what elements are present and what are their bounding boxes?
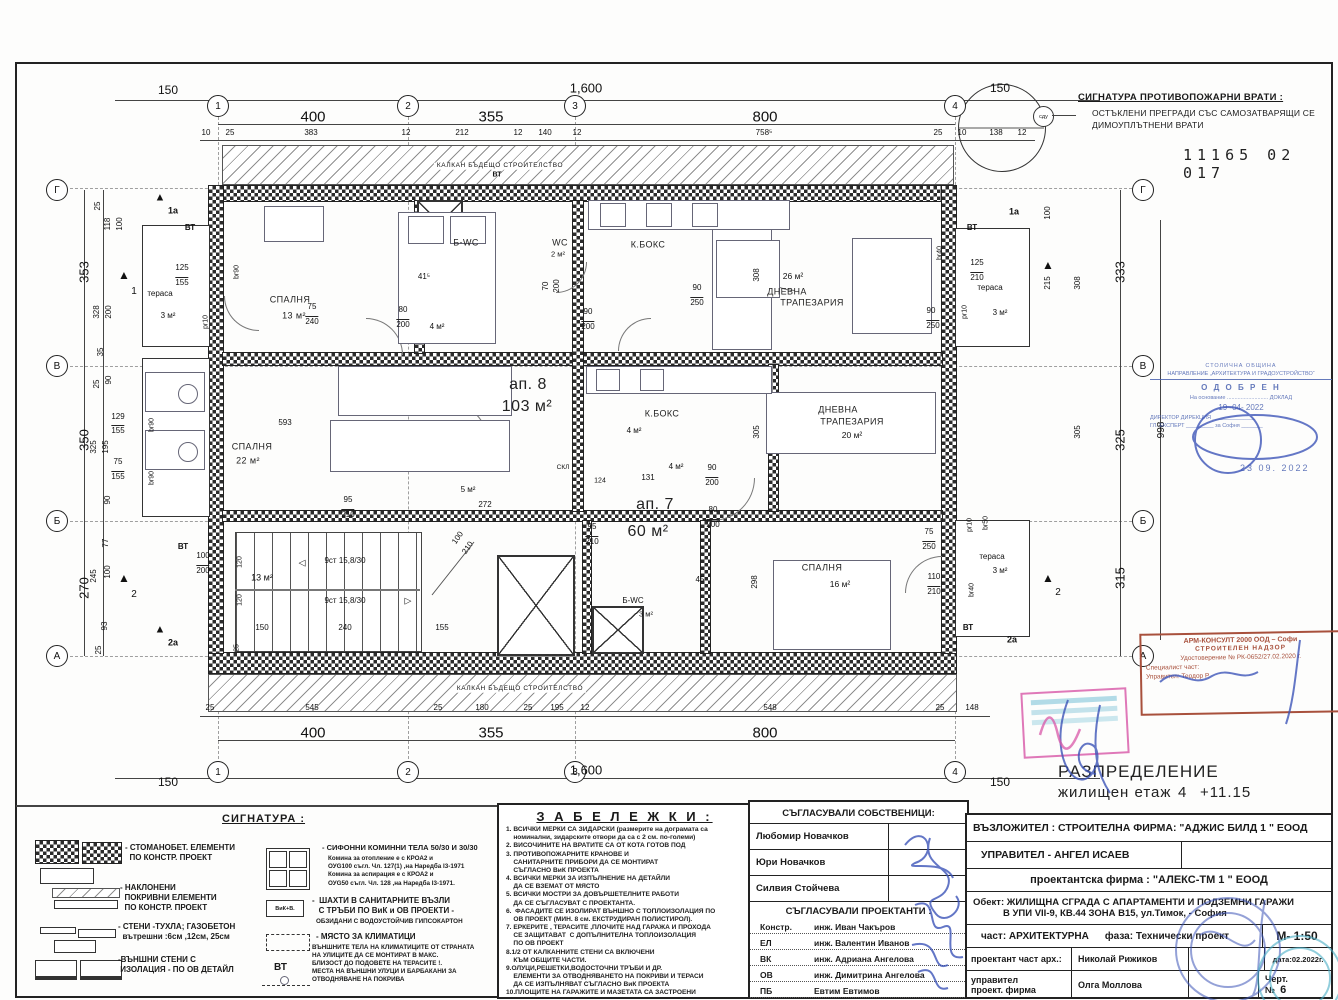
notes-block: З А Б Е Л Е Ж К И : 1. ВСИЧКИ МЕРКИ СА З… xyxy=(497,803,752,999)
dimension-label: br40 xyxy=(969,583,976,597)
dimension-label: 125 xyxy=(970,259,983,267)
grid-bubble: Г xyxy=(46,179,68,201)
dimension-label: 593 xyxy=(278,419,291,427)
owner-row: Силвия Стойчева xyxy=(750,875,967,901)
design-firm-text: проектантска фирма : "АЛЕКС-ТМ 1 " ЕООД xyxy=(1030,874,1268,886)
dimension-label: br90 xyxy=(149,418,156,432)
bt-symbol-arrow xyxy=(262,985,310,986)
room-label: СПАЛНЯ xyxy=(232,443,272,452)
kitchen-appliance xyxy=(640,369,664,391)
dimension-label: 10 xyxy=(202,129,211,137)
approval-date-stamp: 23 09. 2022 xyxy=(1240,463,1310,473)
plan-marker: ВТ xyxy=(963,624,973,632)
dimension-label: 325 xyxy=(90,440,98,453)
title-block: ВЪЗЛОЖИТЕЛ : СТРОИТЕЛНА ФИРМА: "АДЖИС БИ… xyxy=(965,813,1333,999)
legend-swatch-concrete xyxy=(35,840,79,864)
legend-swatch-roof xyxy=(52,888,120,898)
dimension-label: 305 xyxy=(753,425,761,438)
room-label: 103 м² xyxy=(502,399,552,415)
client-text: ВЪЗЛОЖИТЕЛ : СТРОИТЕЛНА ФИРМА: "АДЖИС БИ… xyxy=(973,822,1308,834)
dim-line-bottom-sub xyxy=(200,716,990,717)
dimension-label: 10 xyxy=(958,129,967,137)
grid-bubble: 2 xyxy=(397,761,419,783)
plan-marker: 2 xyxy=(131,590,137,600)
room-label: СПАЛНЯ xyxy=(802,564,842,573)
owner-row: Любомир Новачков xyxy=(750,823,967,849)
approval-stamp-title: О Д О Б Р Е Н xyxy=(1150,382,1332,394)
legend-swatch-wall1 xyxy=(40,927,76,934)
dimension-label: 138 xyxy=(989,129,1002,137)
designer-name: Евтим Евтимов xyxy=(812,982,967,997)
room-label: ТРАПЕЗАРИЯ xyxy=(820,418,883,427)
legend-item5-sub: Комина за отопление е с КРОА2 и ОУG100 с… xyxy=(328,855,464,888)
dimension-label: 100 xyxy=(196,552,209,560)
plan-marker: ▲ xyxy=(118,572,130,584)
legend-item5-text: - СИФОННИ КОМИННИ ТЕЛА 50/30 И 30/30 xyxy=(322,843,478,852)
legend-item4-text: -ВЪНШНИ СТЕНИ С ИЗОЛАЦИЯ - ПО ОВ ДЕТАЙЛ xyxy=(118,955,234,975)
dimension-label: 124 xyxy=(594,478,606,485)
dimension-label: 45 xyxy=(696,576,705,584)
legend-swatch-wall2 xyxy=(78,929,116,938)
dimension-label: pr10 xyxy=(967,518,974,532)
plan-marker: ▲ xyxy=(1042,259,1054,271)
note-line: КЪМ ОБЩИТЕ ЧАСТИ. xyxy=(506,957,745,965)
room-label: 3 м² xyxy=(993,309,1008,317)
designer-row: ЕЛ инж. Валентин Иванов xyxy=(750,934,967,950)
legend-swatch-ext2 xyxy=(80,960,122,980)
staircase-landing-line xyxy=(235,589,420,591)
legend-item3-text: - СТЕНИ -ТУХЛА; ГАЗОБЕТОН вътрешни :6см … xyxy=(118,922,235,942)
owner-name: Юри Новачков xyxy=(750,850,888,875)
dimension-label: 308 xyxy=(753,268,761,281)
dimension-label: 100 xyxy=(104,565,112,578)
room-label: 22 м² xyxy=(236,457,260,466)
dimension-label: 12 xyxy=(573,129,582,137)
dimension-label: 548 xyxy=(763,704,776,712)
manager-row: УПРАВИТЕЛ - АНГЕЛ ИСАЕВ xyxy=(967,842,1331,869)
dimension-label: 155 xyxy=(111,425,124,435)
legend-item6-text: - ШАХТИ В САНИТАРНИТЕ ВЪЗЛИ С ТРЪБИ ПО В… xyxy=(312,896,454,916)
dimension-label: 212 xyxy=(455,129,468,137)
owner-signature-cell xyxy=(888,850,967,875)
approvals-block: СЪГЛАСУВАЛИ СОБСТВЕНИЦИ: Любомир Новачко… xyxy=(748,800,969,999)
plan-marker: 2a xyxy=(1007,636,1017,645)
dimension-label: 240 xyxy=(338,624,351,632)
plan-marker: ▲ xyxy=(118,269,130,281)
legend-swatch-roof2 xyxy=(54,900,118,909)
dimension-label: 200 xyxy=(581,321,594,331)
dimension-label: 305 xyxy=(1074,425,1082,438)
dimension-label: 118 xyxy=(104,218,112,231)
dimension-label: 800 xyxy=(752,726,777,741)
dimension-label: 383 xyxy=(304,129,317,137)
dimension-label: 70 xyxy=(542,282,550,291)
dimension-label: 215 xyxy=(1044,276,1052,289)
legend-item7-sub: ВЪНШНИТЕ ТЕЛА НА КЛИМАТИЦИТЕ ОТ СТРАНАТА… xyxy=(312,944,474,969)
dimension-label: 315 xyxy=(1114,567,1127,589)
dimension-label: 240 xyxy=(305,316,318,326)
fire-note-line2: ДИМОУПЛЪТНЕНИ ВРАТИ xyxy=(1092,120,1204,130)
grid-bubble: 3 xyxy=(564,95,586,117)
designer-row: ОВ инж. Димитрина Ангелова xyxy=(750,966,967,982)
dimension-label: 25 xyxy=(934,129,943,137)
note-line: ПО ОВ ПРОЕКТ xyxy=(506,940,745,948)
client-row: ВЪЗЛОЖИТЕЛ : СТРОИТЕЛНА ФИРМА: "АДЖИС БИ… xyxy=(967,815,1331,842)
party-wall-band-top xyxy=(222,145,954,185)
supervision-stamp: АРМ-КОНСУЛТ 2000 ООД – Софи СТРОИТЕЛЕН Н… xyxy=(1139,630,1338,716)
dimension-label: 353 xyxy=(78,261,91,283)
note-line: номинални, зидарските отвори да са с 2 с… xyxy=(506,834,745,842)
staircase xyxy=(235,532,422,652)
plan-marker: 1a xyxy=(168,207,178,216)
room-label: Б-WC xyxy=(453,239,479,248)
dimension-label: 272 xyxy=(478,501,491,509)
bed xyxy=(338,366,512,416)
approval-stamp-line2: ГЛ. ЕКСПЕРТ _________ за Софня _______ xyxy=(1150,422,1332,430)
dimension-label: 9ст 15,8/30 xyxy=(324,557,365,565)
fire-door-leader-line xyxy=(1052,115,1076,116)
designer-name: инж. Димитрина Ангелова xyxy=(812,966,967,981)
date-value: дата:02.2022г. xyxy=(1264,948,1331,970)
room-label: 13 м² xyxy=(282,312,306,321)
note-line: ДА СЕ СЪГЛАСУВАТ С ПРОЕКТАНТА. xyxy=(506,900,745,908)
part-phase-row: част: АРХИТЕКТУРНА фаза: Технически прое… xyxy=(967,925,1331,948)
dimension-label: 25 xyxy=(434,704,443,712)
designer-row: Констр. инж. Иван Чакъров xyxy=(750,918,967,934)
legend-swatch-ext1 xyxy=(35,960,77,980)
plan-marker: ◁ xyxy=(299,559,306,568)
plan-marker: ВТ xyxy=(178,543,188,551)
terrace-right-bottom xyxy=(955,520,1030,637)
dimension-label: pr10 xyxy=(203,315,210,329)
plan-marker: 1 xyxy=(131,287,137,297)
dimension-label: 150 xyxy=(990,82,1010,94)
dimension-label: 77 xyxy=(102,539,110,548)
plan-marker: 1a xyxy=(1009,208,1019,217)
dimension-label: 800 xyxy=(752,110,777,125)
room-label: 4 м² xyxy=(430,323,445,331)
dimension-label: 90 xyxy=(584,308,593,316)
approval-stamp-head2: НАПРАВЛЕНИЕ „АРХИТЕКТУРА И ГРАДОУСТРОЙСТ… xyxy=(1150,370,1332,379)
note-line: 2. ВИСОЧИНИТЕ НА ВРАТИТЕ СА ОТ КОТА ГОТО… xyxy=(506,842,745,850)
dimension-label: 210 xyxy=(341,509,354,519)
architect-name: Николай Рижиков xyxy=(1071,948,1188,970)
plan-marker: 2a xyxy=(168,639,178,648)
room-label: ап. 7 xyxy=(636,497,674,513)
pillow xyxy=(408,216,444,244)
fire-note-line1: ОСТЪКЛЕНИ ПРЕГРАДИ СЪС САМОЗАТВАРЯЩИ СЕ xyxy=(1092,108,1315,118)
dimension-label: 298 xyxy=(751,575,759,588)
designer-role: ОВ xyxy=(750,966,812,981)
room-label: 5 м² xyxy=(461,486,476,494)
dimension-label: 250 xyxy=(922,541,935,551)
dimension-label: 93 xyxy=(101,622,109,631)
dimension-label: 12 xyxy=(402,129,411,137)
note-line: 1. ВСИЧКИ МЕРКИ СА ЗИДАРСКИ (размерите н… xyxy=(506,826,745,834)
dimension-label: 210 xyxy=(970,272,983,282)
designer-role: ЕЛ xyxy=(750,934,812,949)
dimension-label: 90 xyxy=(927,307,936,315)
room-label: СКЛ xyxy=(557,465,570,472)
note-line: 5. ВСИЧКИ МОСТРИ ЗА ДОВЪРШЕТЕЛНИТЕ РАБОТ… xyxy=(506,891,745,899)
dimension-label: 200 xyxy=(705,477,718,487)
dimension-label: 250 xyxy=(926,320,939,330)
firm-manager-name: Олга Моллова xyxy=(1071,971,1188,999)
dimension-label: 25 xyxy=(524,704,533,712)
dimension-label: 120 xyxy=(237,594,244,606)
dimension-label: pr10 xyxy=(962,305,969,319)
shower-cabin xyxy=(592,606,644,654)
dimension-label: 110 xyxy=(928,573,941,581)
dimension-label: 100 xyxy=(116,217,124,230)
dimension-label: 155 xyxy=(435,624,448,632)
interior-wall-v2 xyxy=(572,200,584,512)
grid-bubble: Б xyxy=(46,510,68,532)
designer-name: инж. Адриана Ангелова xyxy=(812,950,967,965)
room-label: К.БОКС xyxy=(631,241,666,250)
legend-item7-text: - МЯСТО ЗА КЛИМАТИЦИ xyxy=(316,932,416,942)
legend-item1-text: - СТОМАНОБЕТ. ЕЛЕМЕНТИ ПО КОНСТР. ПРОЕКТ xyxy=(125,843,235,863)
dimension-label: 90 xyxy=(693,284,702,292)
dimension-label: 195 xyxy=(550,704,563,712)
dimension-label: 25 xyxy=(226,129,235,137)
owner-signature-cell xyxy=(888,876,967,901)
kitchen-appliance xyxy=(596,369,620,391)
dimension-label: 150 xyxy=(990,776,1010,788)
note-line: 6. ФАСАДИТЕ СЕ ИЗОЛИРАТ ВЪНШНО С ТОПЛОИЗ… xyxy=(506,908,745,916)
plan-marker: ВТ xyxy=(492,172,501,179)
note-line: 7. ЕРКЕРИТЕ , ТЕРАСИТЕ ,ПЛОЧИТЕ НАД ГАРА… xyxy=(506,924,745,932)
dimension-label: 195 xyxy=(102,440,110,453)
room-label: 3 м² xyxy=(161,312,176,320)
note-line: САНИТАРНИТЕ ПРИБОРИ ДА СЕ МОНТИРАТ xyxy=(506,859,745,867)
dimension-label: 35 xyxy=(97,348,105,357)
note-line: 10.ПЛОЩИТЕ НА ГАРАЖИТЕ И МАЗЕТАТА СА ЗАС… xyxy=(506,989,745,997)
note-line: 4. ВСИЧКИ МЕРКИ ЗА ИЗПЪЛНЕНИЕ НА ДЕТАЙЛИ xyxy=(506,875,745,883)
room-label: WC xyxy=(552,239,568,248)
dimension-label: 328 xyxy=(93,305,101,318)
dimension-label: 95 xyxy=(588,523,597,531)
dimension-label: 1,600 xyxy=(570,82,603,95)
dimension-label: 120 xyxy=(237,556,244,568)
dim-line-bottom-main xyxy=(218,740,955,741)
dimension-label: 150 xyxy=(158,776,178,788)
bed xyxy=(773,560,891,650)
dimension-label: 125 xyxy=(175,264,188,272)
dimension-label: 200 xyxy=(396,319,409,329)
dimension-label: 90 xyxy=(104,496,112,505)
approval-stamp-sub: На основание ...........................… xyxy=(1150,394,1332,402)
dimension-label: br90 xyxy=(149,471,156,485)
kitchen-appliance xyxy=(600,203,626,227)
dimension-label: 245 xyxy=(90,569,98,582)
room-label: 3 м² xyxy=(993,567,1008,575)
dimension-label: 9ст 15,8/30 xyxy=(324,597,365,605)
plan-marker: ▲ xyxy=(155,193,166,204)
manager-text: УПРАВИТЕЛ - АНГЕЛ ИСАЕВ xyxy=(967,842,1182,868)
designer-row: ВК инж. Адриана Ангелова xyxy=(750,950,967,966)
shaft-icon: ВиК+В. xyxy=(266,900,304,917)
dimension-label: 80 xyxy=(709,506,718,514)
dimension-label: 333 xyxy=(1114,261,1127,283)
dimension-label: 75 xyxy=(114,458,123,466)
legend-swatch-wall3 xyxy=(54,940,96,953)
interior-wall-v4 xyxy=(700,520,711,654)
dimension-label: 148 xyxy=(965,704,978,712)
room-label: ДНЕВНА xyxy=(767,288,807,297)
approval-stamp-line1: ДИРЕКТОР ДИРЕКЦИЯ ______________ xyxy=(1150,414,1332,422)
designer-role: ВК xyxy=(750,950,812,965)
drawing-subtitle: жилищен етаж xyxy=(1058,784,1171,801)
plan-marker: ВТ xyxy=(967,224,977,232)
dimension-label: 41⁵ xyxy=(418,273,430,281)
sheet-number-cell: Черт. № 6 xyxy=(1258,971,1331,999)
legend-item6-sub: ОБЗИДАНИ С ВОДОУСТОЙЧИВ ГИПСОКАРТОН xyxy=(316,918,463,926)
dimension-label: 140 xyxy=(538,129,551,137)
plan-marker: ▲ xyxy=(155,625,166,636)
note-line: ДА СЕ ВЗЕМАТ ОТ МЯСТО xyxy=(506,883,745,891)
approval-stamp-date: 19 -04- 2022 xyxy=(1150,402,1332,414)
dimension-label: 355 xyxy=(478,726,503,741)
dimension-label: 155 xyxy=(111,471,124,481)
note-line: ДА СЕ ИЗПЪЛНЯВАТ СЪГЛАСНО ВиК ПРОЕКТА xyxy=(506,981,745,989)
drawing-sheet: КАЛКАН БЪДЕЩО СТРОИТЕЛСТВО КАЛКАН БЪДЕЩО… xyxy=(0,0,1338,1000)
designers-title: СЪГЛАСУВАЛИ ПРОЕКТАНТИ : xyxy=(750,901,967,918)
fire-door-symbol-circle: сду xyxy=(1033,106,1054,127)
dim-line-top-sub xyxy=(200,140,1035,141)
designer-name: инж. Валентин Иванов xyxy=(812,934,967,949)
room-label: тераса xyxy=(979,553,1004,561)
dimension-label: 210 xyxy=(585,536,598,546)
room-label: тераса xyxy=(977,284,1002,292)
room-label: ДНЕВНА xyxy=(818,406,858,415)
grid-bubble: 4 xyxy=(944,95,966,117)
dimension-label: 200 xyxy=(706,519,719,529)
dimension-label: 1,600 xyxy=(570,764,603,777)
scale-value: М- 1:50 xyxy=(1262,925,1331,947)
legend-top-rule xyxy=(16,805,497,807)
dimension-label: 200 xyxy=(553,279,561,292)
bed xyxy=(330,420,510,472)
dimension-label: 308 xyxy=(1074,276,1082,289)
room-label: 4 м² xyxy=(669,463,684,471)
plan-marker: 2 xyxy=(1055,588,1061,598)
sheet-number: 6 xyxy=(1280,984,1286,996)
designer-role: ПБ xyxy=(750,982,812,997)
note-line: 9.ОЛУЦИ,РЕШЕТКИ,ВОДОСТОЧНИ ТРЪБИ И ДР. xyxy=(506,965,745,973)
note-line: ОВ ПРОЕКТ (МИН. 8 см. ЕКСТРУДИРАН ПОЛИСТ… xyxy=(506,916,745,924)
legend-title: СИГНАТУРА : xyxy=(222,813,305,825)
room-label: ап. 8 xyxy=(509,377,547,393)
room-label: 2 м² xyxy=(551,250,565,258)
dimension-label: 325 xyxy=(1114,429,1127,451)
object-line1: Обект: ЖИЛИЩНА СГРАДА С АПАРТАМЕНТИ И ПО… xyxy=(973,897,1294,908)
grid-bubble: 4 xyxy=(944,761,966,783)
dimension-label: 25 xyxy=(95,646,103,655)
room-label: 4 м² xyxy=(627,427,642,435)
dimension-label: 13 м² xyxy=(251,574,273,583)
object-row: Обект: ЖИЛИЩНА СГРАДА С АПАРТАМЕНТИ И ПО… xyxy=(967,892,1331,925)
plan-marker: ▷ xyxy=(405,597,412,606)
dimension-label: 25 xyxy=(936,704,945,712)
legend-item2-text: - НАКЛОНЕНИ ПОКРИВНИ ЕЛЕМЕНТИ ПО КОНСТР.… xyxy=(120,883,217,913)
room-label: 26 м² xyxy=(783,272,804,281)
dimension-label: 100 xyxy=(1044,206,1052,219)
owner-signature-cell xyxy=(888,824,967,849)
legend-swatch-outline xyxy=(40,868,94,884)
phase-label: фаза: Технически проект xyxy=(1089,931,1262,942)
dimension-label: 95 xyxy=(344,496,353,504)
drawing-title: РАЗПРЕДЕЛЕНИЕ xyxy=(1058,762,1219,782)
elevator-shaft xyxy=(497,555,575,656)
grid-bubble: Г xyxy=(1132,179,1154,201)
architect-label: проектант част арх.: xyxy=(967,954,1071,964)
chair xyxy=(178,384,198,404)
dimension-label: 758⁵ xyxy=(756,129,773,137)
kitchen-appliance xyxy=(692,203,718,227)
band-top-caption: КАЛКАН БЪДЕЩО СТРОИТЕЛСТВО xyxy=(434,163,566,170)
dimension-label: 180 xyxy=(475,704,488,712)
room-label: СПАЛНЯ xyxy=(270,296,310,305)
owner-name: Любомир Новачков xyxy=(750,824,888,849)
dimension-label: 129 xyxy=(111,413,124,421)
room-label: Б-WC xyxy=(622,597,643,605)
grid-bubble: Б xyxy=(1132,510,1154,532)
dimension-label: 210 xyxy=(927,586,940,596)
room-label: 20 м² xyxy=(842,431,863,440)
kitchen-appliance xyxy=(646,203,672,227)
registration-number: 11165 02 017 xyxy=(1183,146,1338,182)
grid-bubble: А xyxy=(46,645,68,667)
dimension-label: 355 xyxy=(478,110,503,125)
note-line: СЕ ЗАЩИТАВАТ С ДОПЪЛНИТЕЛНА ТОПЛОИЗОЛАЦИ… xyxy=(506,932,745,940)
dimension-label: 12 xyxy=(1018,129,1027,137)
bt-symbol-label: ВТ xyxy=(274,962,287,975)
room-label: 3 м² xyxy=(639,610,653,618)
chimney-icon xyxy=(266,848,310,890)
dim-line-top-main xyxy=(218,124,955,125)
dimension-label: 250 xyxy=(690,297,703,307)
designer-row: ПБ Евтим Евтимов xyxy=(750,982,967,998)
dimension-label: 25 xyxy=(94,202,102,211)
firm-manager-row: управител проект. фирма Олга Моллова Чер… xyxy=(967,971,1331,999)
dimension-label: 400 xyxy=(300,110,325,125)
room-label: К.БОКС xyxy=(645,410,680,419)
owner-row: Юри Новачков xyxy=(750,849,967,875)
legend-swatch-concrete2 xyxy=(82,842,122,864)
ac-place-icon xyxy=(266,934,310,951)
room-label: 60 м² xyxy=(627,524,668,540)
floor-elevation: +11.15 xyxy=(1200,784,1251,801)
design-firm-row: проектантска фирма : "АЛЕКС-ТМ 1 " ЕООД xyxy=(967,869,1331,892)
grid-bubble: 1 xyxy=(207,761,229,783)
dimension-label: 400 xyxy=(300,726,325,741)
dimension-label: 150 xyxy=(255,624,268,632)
legend-item8-sub: МЕСТА НА ВЪНШНИ УЛУЦИ И БАРБАКАНИ ЗА ОТВ… xyxy=(312,968,457,984)
band-bottom-caption: КАЛКАН БЪДЕЩО СТРОИТЕЛСТВО xyxy=(454,686,586,693)
wardrobe xyxy=(264,206,324,242)
dimension-label: 90 xyxy=(708,464,717,472)
designer-name: инж. Иван Чакъров xyxy=(812,918,967,933)
dimension-label: 545 xyxy=(305,704,318,712)
grid-bubble: В xyxy=(46,355,68,377)
grid-bubble: 1 xyxy=(207,95,229,117)
plan-marker: ВТ xyxy=(185,224,195,232)
dimension-label: 12 xyxy=(514,129,523,137)
exterior-wall-left xyxy=(208,185,224,654)
dimension-label: 12 xyxy=(581,704,590,712)
fire-note-title: СИГНАТУРА ПРОТИВОПОЖАРНИ ВРАТИ : xyxy=(1078,92,1283,103)
